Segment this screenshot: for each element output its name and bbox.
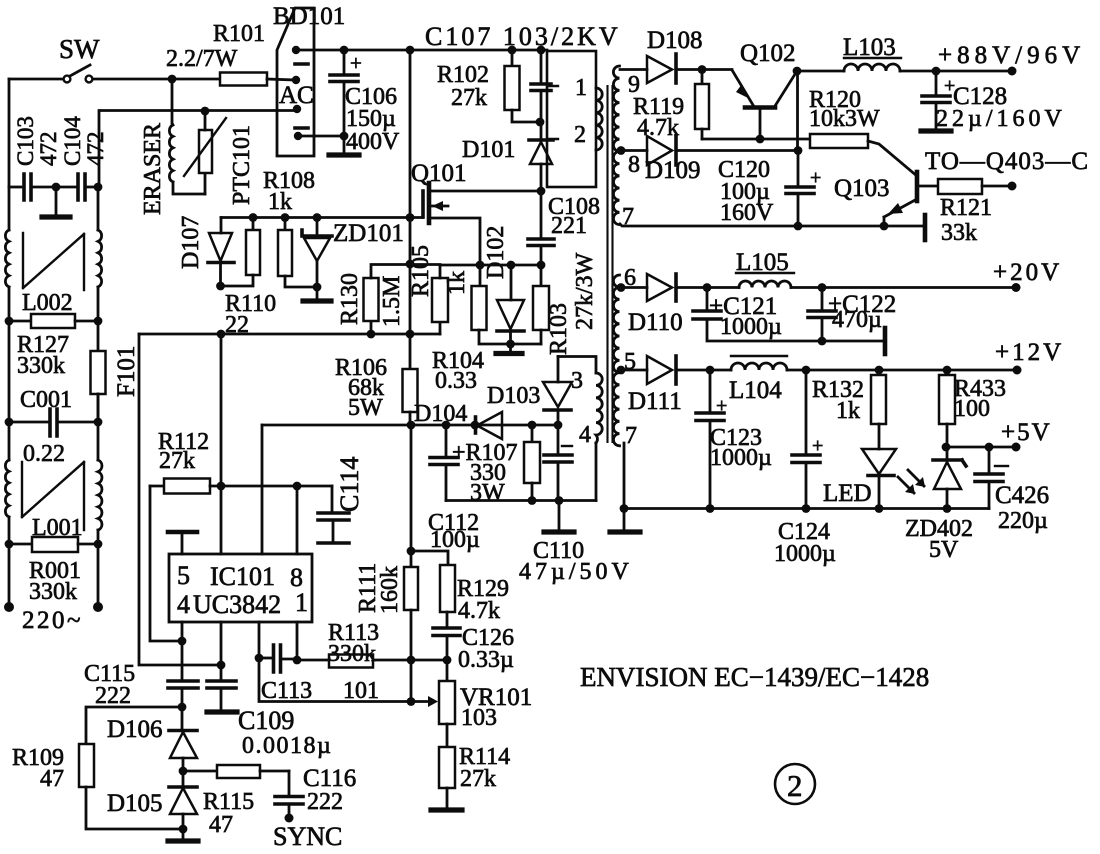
svg-text:+20V: +20V [993,259,1062,286]
svg-text:1000µ: 1000µ [710,445,772,471]
svg-text:R130: R130 [337,273,363,325]
svg-text:47: 47 [40,766,64,792]
svg-text:TO—Q403—C: TO—Q403—C [925,148,1089,175]
svg-text:R103: R103 [546,303,572,355]
svg-text:3W: 3W [470,480,505,506]
svg-text:D111: D111 [628,388,682,415]
svg-text:1: 1 [295,588,308,617]
svg-text:1.5M: 1.5M [379,276,405,327]
svg-text:100: 100 [954,396,990,422]
svg-text:C109: C109 [238,706,294,735]
svg-text:4: 4 [579,422,591,448]
svg-text:8: 8 [628,152,640,178]
svg-text:472: 472 [36,132,61,167]
svg-text:4.7k: 4.7k [458,598,500,624]
svg-text:L104: L104 [729,377,782,404]
svg-text:ZD101: ZD101 [333,220,404,247]
svg-text:LED: LED [823,480,872,507]
svg-text:2: 2 [574,122,586,148]
svg-text:0.0018µ: 0.0018µ [242,733,332,759]
svg-text:1k: 1k [836,398,860,424]
svg-text:330k: 330k [328,641,376,667]
svg-text:1k: 1k [444,271,470,295]
svg-text:R101: R101 [213,21,265,47]
svg-text:UC3842: UC3842 [193,590,281,619]
svg-text:+5V: +5V [1001,419,1052,446]
svg-text:Q102: Q102 [740,40,796,67]
svg-text:470µ: 470µ [832,307,882,333]
svg-text:47: 47 [209,812,233,838]
svg-text:D106: D106 [107,716,163,743]
svg-text:+: + [350,51,362,75]
svg-text:R105: R105 [408,245,434,297]
svg-text:100µ: 100µ [430,527,480,553]
svg-text:D105: D105 [107,790,163,817]
svg-text:220µ: 220µ [998,508,1048,534]
svg-text:1k: 1k [268,189,292,215]
svg-text:R121: R121 [940,195,992,221]
svg-text:+88V/96V: +88V/96V [938,42,1085,69]
svg-text:+: + [810,167,821,189]
svg-text:27k/3W: 27k/3W [572,252,598,330]
svg-text:IC101: IC101 [210,562,275,591]
svg-text:2.2/7W: 2.2/7W [166,46,238,72]
svg-text:103: 103 [461,705,497,731]
svg-text:400V: 400V [346,129,400,155]
svg-text:AC: AC [279,82,314,109]
svg-text:22µ/160V: 22µ/160V [936,106,1066,132]
svg-text:220~: 220~ [22,607,83,634]
svg-text:Q103: Q103 [834,175,890,202]
svg-text:ERASER: ERASER [140,123,166,215]
svg-text:C114: C114 [335,457,364,512]
svg-text:5W: 5W [348,395,383,421]
svg-text:330k: 330k [17,353,65,379]
svg-text:L002: L002 [22,290,73,316]
svg-text:0.33µ: 0.33µ [458,647,514,673]
svg-text:Q101: Q101 [411,160,467,187]
svg-text:+12V: +12V [995,339,1064,366]
svg-text:BD101: BD101 [273,3,345,30]
svg-text:C107 103/2KV: C107 103/2KV [425,22,621,51]
svg-text:3: 3 [571,368,583,394]
svg-text:222: 222 [307,789,343,815]
svg-text:D103: D103 [487,383,540,409]
svg-text:D108: D108 [647,27,703,54]
svg-text:222: 222 [95,683,131,709]
svg-text:C104: C104 [60,116,85,166]
svg-text:5V: 5V [929,537,959,563]
svg-text:D101: D101 [462,137,515,163]
svg-text:0.33: 0.33 [435,368,477,394]
svg-text:0.22: 0.22 [23,441,65,467]
svg-text:D104: D104 [414,401,467,427]
svg-text:27k: 27k [451,85,487,111]
svg-text:472: 472 [83,132,108,167]
svg-text:D102: D102 [483,226,509,279]
svg-text:D110: D110 [628,309,683,336]
svg-text:F101: F101 [113,346,140,397]
svg-text:47µ/50V: 47µ/50V [519,559,633,585]
svg-text:330k: 330k [29,579,77,605]
svg-text:D109: D109 [645,157,701,184]
svg-text:C116: C116 [303,765,356,792]
svg-text:1000µ: 1000µ [720,314,782,340]
svg-text:4: 4 [177,590,190,619]
svg-text:160V: 160V [720,200,774,226]
svg-text:27k: 27k [460,766,496,792]
svg-text:160k: 160k [377,566,403,614]
svg-text:10k3W: 10k3W [809,106,880,132]
svg-text:4.7k: 4.7k [637,115,679,141]
svg-text:33k: 33k [941,220,977,246]
svg-text:C426: C426 [995,482,1049,509]
svg-text:27k: 27k [159,448,195,474]
svg-text:SYNC: SYNC [273,822,342,851]
svg-text:PTC101: PTC101 [229,125,255,205]
svg-text:2: 2 [787,768,803,803]
svg-text:221: 221 [551,213,587,239]
svg-text:+: + [812,435,823,457]
svg-text:D107: D107 [178,216,204,269]
svg-text:C103: C103 [13,116,38,166]
svg-text:C001: C001 [20,387,72,413]
svg-text:5: 5 [177,561,190,590]
svg-text:1: 1 [575,75,587,101]
svg-text:ENVISION EC−1439/EC−1428: ENVISION EC−1439/EC−1428 [580,662,929,692]
svg-text:+: + [716,395,727,417]
svg-text:7: 7 [625,423,637,449]
svg-text:1000µ: 1000µ [774,541,836,567]
svg-text:SW: SW [59,34,100,64]
